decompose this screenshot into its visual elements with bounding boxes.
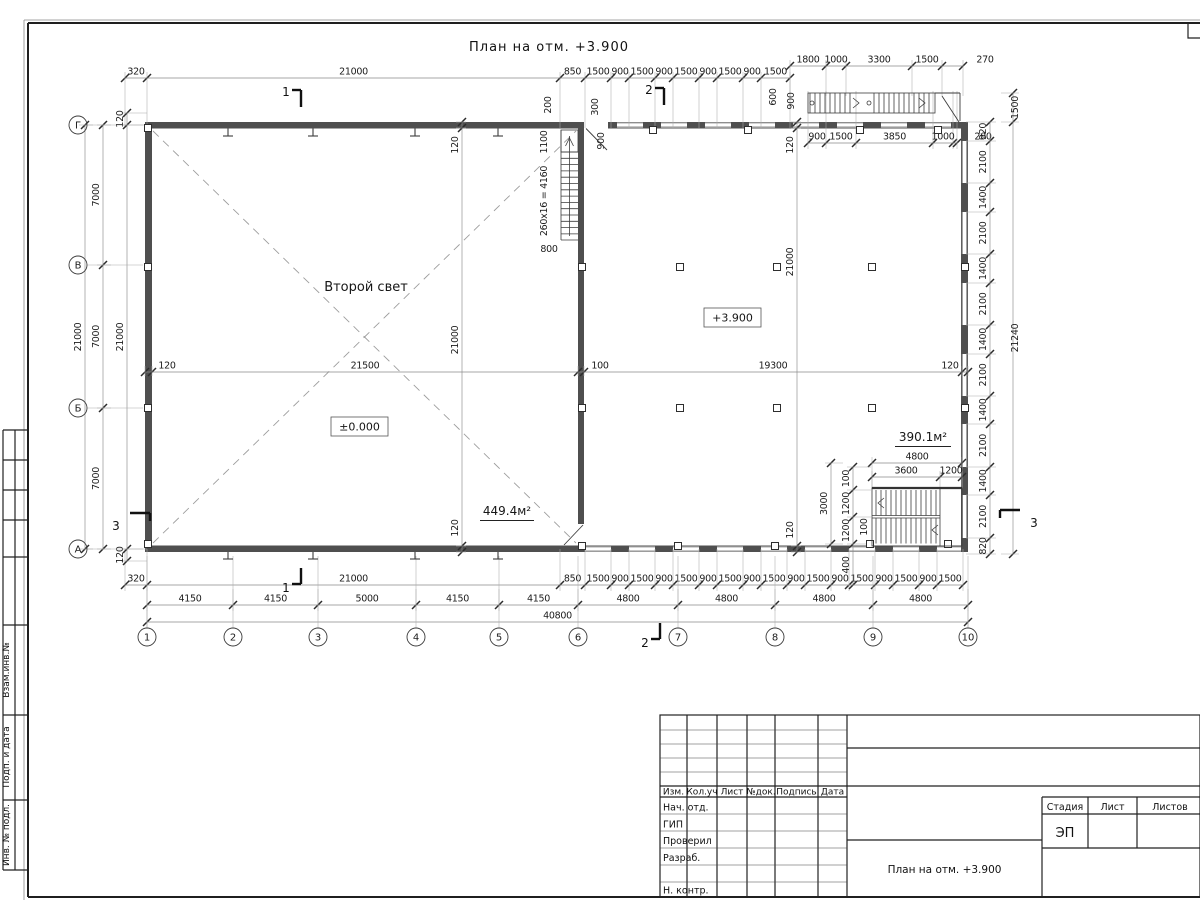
column-marker	[962, 405, 969, 412]
dim-label: 4800	[617, 594, 640, 605]
dim-label: 320	[127, 574, 144, 585]
dim-label: 1400	[978, 469, 989, 492]
dim-label: 1500	[830, 132, 853, 143]
dim-label: 260x16 = 4160	[539, 166, 550, 236]
corner-box	[1188, 23, 1200, 38]
dim-label: 3	[315, 633, 321, 644]
dim-label: 1100	[539, 130, 550, 153]
dim-label: 1500	[807, 574, 830, 585]
dim-label: 1500	[719, 67, 742, 78]
section-mark-2: 2	[641, 623, 660, 650]
dim-label: 1500	[675, 67, 698, 78]
dim-label: 100	[859, 518, 870, 535]
dim-label: 21000	[339, 67, 368, 78]
dim-label: 1400	[978, 328, 989, 351]
dim-label: 8	[772, 633, 778, 644]
dim-right-outer: 150021240	[1001, 89, 1021, 558]
dim-label: 2100	[978, 363, 989, 386]
dim-label: 100	[591, 361, 608, 372]
dim-label: В	[75, 261, 82, 272]
dim-label: 1000	[825, 55, 848, 66]
dim-label: 3850	[883, 132, 906, 143]
column-marker	[745, 127, 752, 134]
column-marker	[675, 543, 682, 550]
dim-label: 1400	[978, 398, 989, 421]
dim-label: 1500	[1010, 96, 1021, 119]
dim-label: 21240	[1010, 323, 1021, 352]
dim-stair-3600: 36001200	[868, 466, 966, 490]
dim-left-7000: 700070007000	[91, 121, 111, 553]
dim-label: 1500	[631, 574, 654, 585]
dim-label: 1	[144, 633, 150, 644]
dim-label: 1	[282, 85, 290, 99]
column-marker	[677, 405, 684, 412]
column-marker	[579, 405, 586, 412]
room-labels: Второй свет ±0.000 +3.900 449.4м² 390.1м…	[324, 280, 951, 521]
col-izm: Изм.	[663, 788, 684, 798]
dim-label: 120	[450, 136, 461, 153]
dim-label: 4150	[179, 594, 202, 605]
row-nach-otd: Нач. отд.	[663, 803, 709, 814]
dim-hall-right: 12021000120	[785, 118, 801, 556]
door-opening-top	[584, 122, 608, 130]
dim-bottom-2: 415041505000415041504800480048004800	[143, 589, 972, 611]
dim-label: 1200	[940, 466, 963, 477]
dim-label: 900	[655, 67, 672, 78]
dim-label: 270	[976, 55, 993, 66]
stage-value: ЭП	[1056, 826, 1075, 841]
dim-label: 7000	[91, 467, 102, 490]
dim-left-21000: 21000	[73, 121, 93, 553]
dim-mid: 1202150010019300120	[141, 361, 972, 377]
dim-label: 300	[590, 98, 601, 115]
dim-label: 100	[841, 470, 852, 487]
dim-label: 900	[831, 574, 848, 585]
dim-label: 1	[282, 581, 290, 595]
dim-label: 1500	[587, 574, 610, 585]
dim-right-inner: 9202100140021001400210014002100140021001…	[966, 118, 996, 558]
dim-label: 4150	[446, 594, 469, 605]
dim-label: 2100	[978, 505, 989, 528]
stamp-vzam-inv: Взам.инв.№	[2, 642, 12, 697]
sheet-label: Лист	[1100, 802, 1125, 813]
column-marker	[867, 541, 874, 548]
dim-label: 21000	[115, 322, 126, 351]
section-mark-1: 1	[282, 568, 301, 595]
dim-label: 1500	[939, 574, 962, 585]
dim-label: Б	[75, 404, 82, 415]
dim-label: 1500	[719, 574, 742, 585]
dim-label: 1400	[978, 257, 989, 280]
dim-label: 7000	[91, 325, 102, 348]
stamp-podp-data: Подп. и дата	[2, 726, 12, 787]
dim-label: 2	[641, 636, 649, 650]
col-data: Дата	[821, 788, 844, 798]
dim-label: 1500	[764, 67, 787, 78]
section-mark-3: 3	[112, 513, 150, 533]
dim-label: 5000	[356, 594, 379, 605]
column-marker	[869, 405, 876, 412]
dim-label: 10	[962, 633, 975, 644]
column-marker	[579, 543, 586, 550]
dim-label: 900	[875, 574, 892, 585]
dim-label: 4150	[264, 594, 287, 605]
elevation-zero: ±0.000	[339, 421, 380, 434]
dim-label: 900	[611, 574, 628, 585]
dim-label: 4800	[715, 594, 738, 605]
sheet-frame	[24, 20, 1200, 900]
area-left: 449.4м²	[483, 504, 531, 518]
dim-label: 2100	[978, 221, 989, 244]
dim-label: 21500	[351, 361, 380, 372]
row-gip: ГИП	[663, 820, 683, 831]
dim-label: 6	[575, 633, 581, 644]
doors	[564, 96, 959, 545]
dim-label: 4150	[527, 594, 550, 605]
row-n-kontr: Н. контр.	[663, 886, 709, 897]
dim-label: 3	[1030, 516, 1038, 530]
dim-label: 1500	[895, 574, 918, 585]
dim-left-inner: 12021000120	[115, 109, 147, 565]
dim-bottom-3: 40800	[143, 610, 972, 628]
column-marker	[579, 264, 586, 271]
dim-label: 4800	[906, 452, 929, 463]
column-marker	[935, 127, 942, 134]
dim-top-main: 3202100085015009001500900150090015009001…	[121, 67, 794, 129]
dim-label: 40800	[543, 611, 572, 622]
door-leaf-entry	[942, 96, 959, 122]
elevation-390: +3.900	[712, 312, 753, 325]
dim-label: 19300	[759, 361, 788, 372]
dim-label: Г	[75, 121, 81, 132]
dim-label: 2	[230, 633, 236, 644]
dim-label: 920	[978, 123, 989, 140]
plan-title: План на отм. +3.900	[469, 40, 629, 55]
drawing-sheet: Взам.инв.№ Подп. и дата Инв. № подл. Пла…	[0, 0, 1200, 900]
dim-label: 4800	[813, 594, 836, 605]
dim-stairbr-outer: 3000	[819, 459, 843, 548]
column-marker	[650, 127, 657, 134]
dim-label: 2100	[978, 150, 989, 173]
second-light-label: Второй свет	[324, 280, 408, 295]
dim-label: 9	[870, 633, 876, 644]
column-marker	[677, 264, 684, 271]
dim-label: 900	[808, 132, 825, 143]
column-marker	[772, 543, 779, 550]
dim-label: 400	[841, 556, 852, 573]
dim-label: 900	[786, 92, 797, 109]
dim-label: 900	[919, 574, 936, 585]
dim-label: 850	[564, 67, 581, 78]
interior-wall	[578, 128, 584, 546]
dim-label: 3	[112, 519, 120, 533]
column-marker	[945, 541, 952, 548]
dim-label: 3600	[895, 466, 918, 477]
dim-label: 1500	[851, 574, 874, 585]
section-mark-1: 1	[282, 85, 301, 107]
column-marker	[145, 405, 152, 412]
dim-label: 120	[785, 521, 796, 538]
dim-top-right: 1800100033001500270	[786, 55, 994, 97]
dim-label: 900	[655, 574, 672, 585]
dim-label: 21000	[73, 322, 84, 351]
dim-label: 900	[787, 574, 804, 585]
dim-hall-left: 12021000120	[450, 118, 466, 556]
dim-label: 2100	[978, 434, 989, 457]
dim-label: 1200	[841, 519, 852, 542]
stamp-inv-podl: Инв. № подл.	[2, 804, 12, 866]
col-list: Лист	[721, 788, 744, 798]
dim-label: 820	[978, 537, 989, 554]
sheets-label: Листов	[1152, 802, 1188, 813]
dim-label: 320	[127, 67, 144, 78]
dim-label: 900	[743, 67, 760, 78]
dim-label: 800	[540, 244, 557, 255]
row-razrab: Разраб.	[663, 853, 700, 864]
stair-bottom-right	[872, 488, 962, 546]
column-marker	[857, 127, 864, 134]
dim-label: А	[75, 545, 82, 556]
dim-label: 5	[496, 633, 502, 644]
dim-label: 200	[543, 96, 554, 113]
dim-label: 1500	[763, 574, 786, 585]
stage-label: Стадия	[1047, 802, 1083, 813]
second-light-diagonals	[153, 131, 576, 543]
col-koluch: Кол.уч	[686, 788, 717, 798]
area-right: 390.1м²	[899, 430, 947, 444]
col-podpis: Подпись	[776, 788, 816, 798]
dim-label: 900	[699, 67, 716, 78]
dim-label: 4800	[909, 594, 932, 605]
column-marker	[869, 264, 876, 271]
dim-label: 1500	[587, 67, 610, 78]
dim-label: 900	[611, 67, 628, 78]
dim-label: 7000	[91, 183, 102, 206]
dim-label: 1500	[916, 55, 939, 66]
dim-label: 600	[768, 88, 779, 105]
dim-label: 900	[699, 574, 716, 585]
dim-label: 1400	[978, 186, 989, 209]
row-proveril: Проверил	[663, 836, 712, 847]
dim-label: 4	[413, 633, 419, 644]
dim-label: 21000	[339, 574, 368, 585]
dim-label: 3300	[868, 55, 891, 66]
dim-label: 7	[675, 633, 681, 644]
dim-label: 1200	[841, 492, 852, 515]
dim-label: 2	[645, 83, 653, 97]
dim-label: 2100	[978, 292, 989, 315]
dim-label: 120	[785, 136, 796, 153]
dim-label: 850	[564, 574, 581, 585]
external-stair	[808, 93, 935, 113]
dim-label: 21000	[450, 325, 461, 354]
section-mark-3: 3	[1000, 510, 1038, 530]
dim-label: 3000	[819, 492, 830, 515]
title-block: Изм. Кол.уч Лист №док. Подпись Дата Нач.…	[660, 715, 1200, 897]
dim-label: 120	[941, 361, 958, 372]
column-marker	[145, 125, 152, 132]
column-marker	[774, 405, 781, 412]
dim-label: 120	[158, 361, 175, 372]
dim-label: 1500	[631, 67, 654, 78]
column-marker	[145, 264, 152, 271]
generated-annotations: 3202100085015009001500900150090015009001…	[69, 55, 1038, 651]
column-marker	[962, 264, 969, 271]
stairs	[561, 93, 962, 546]
doc-title: План на отм. +3.900	[888, 864, 1002, 876]
column-marker	[145, 541, 152, 548]
col-ndok: №док.	[746, 788, 775, 798]
section-mark-2: 2	[645, 83, 664, 105]
column-marker	[774, 264, 781, 271]
dim-label: 1800	[797, 55, 820, 66]
dim-label: 21000	[785, 247, 796, 276]
dim-label: 120	[450, 519, 461, 536]
dim-label: 900	[743, 574, 760, 585]
